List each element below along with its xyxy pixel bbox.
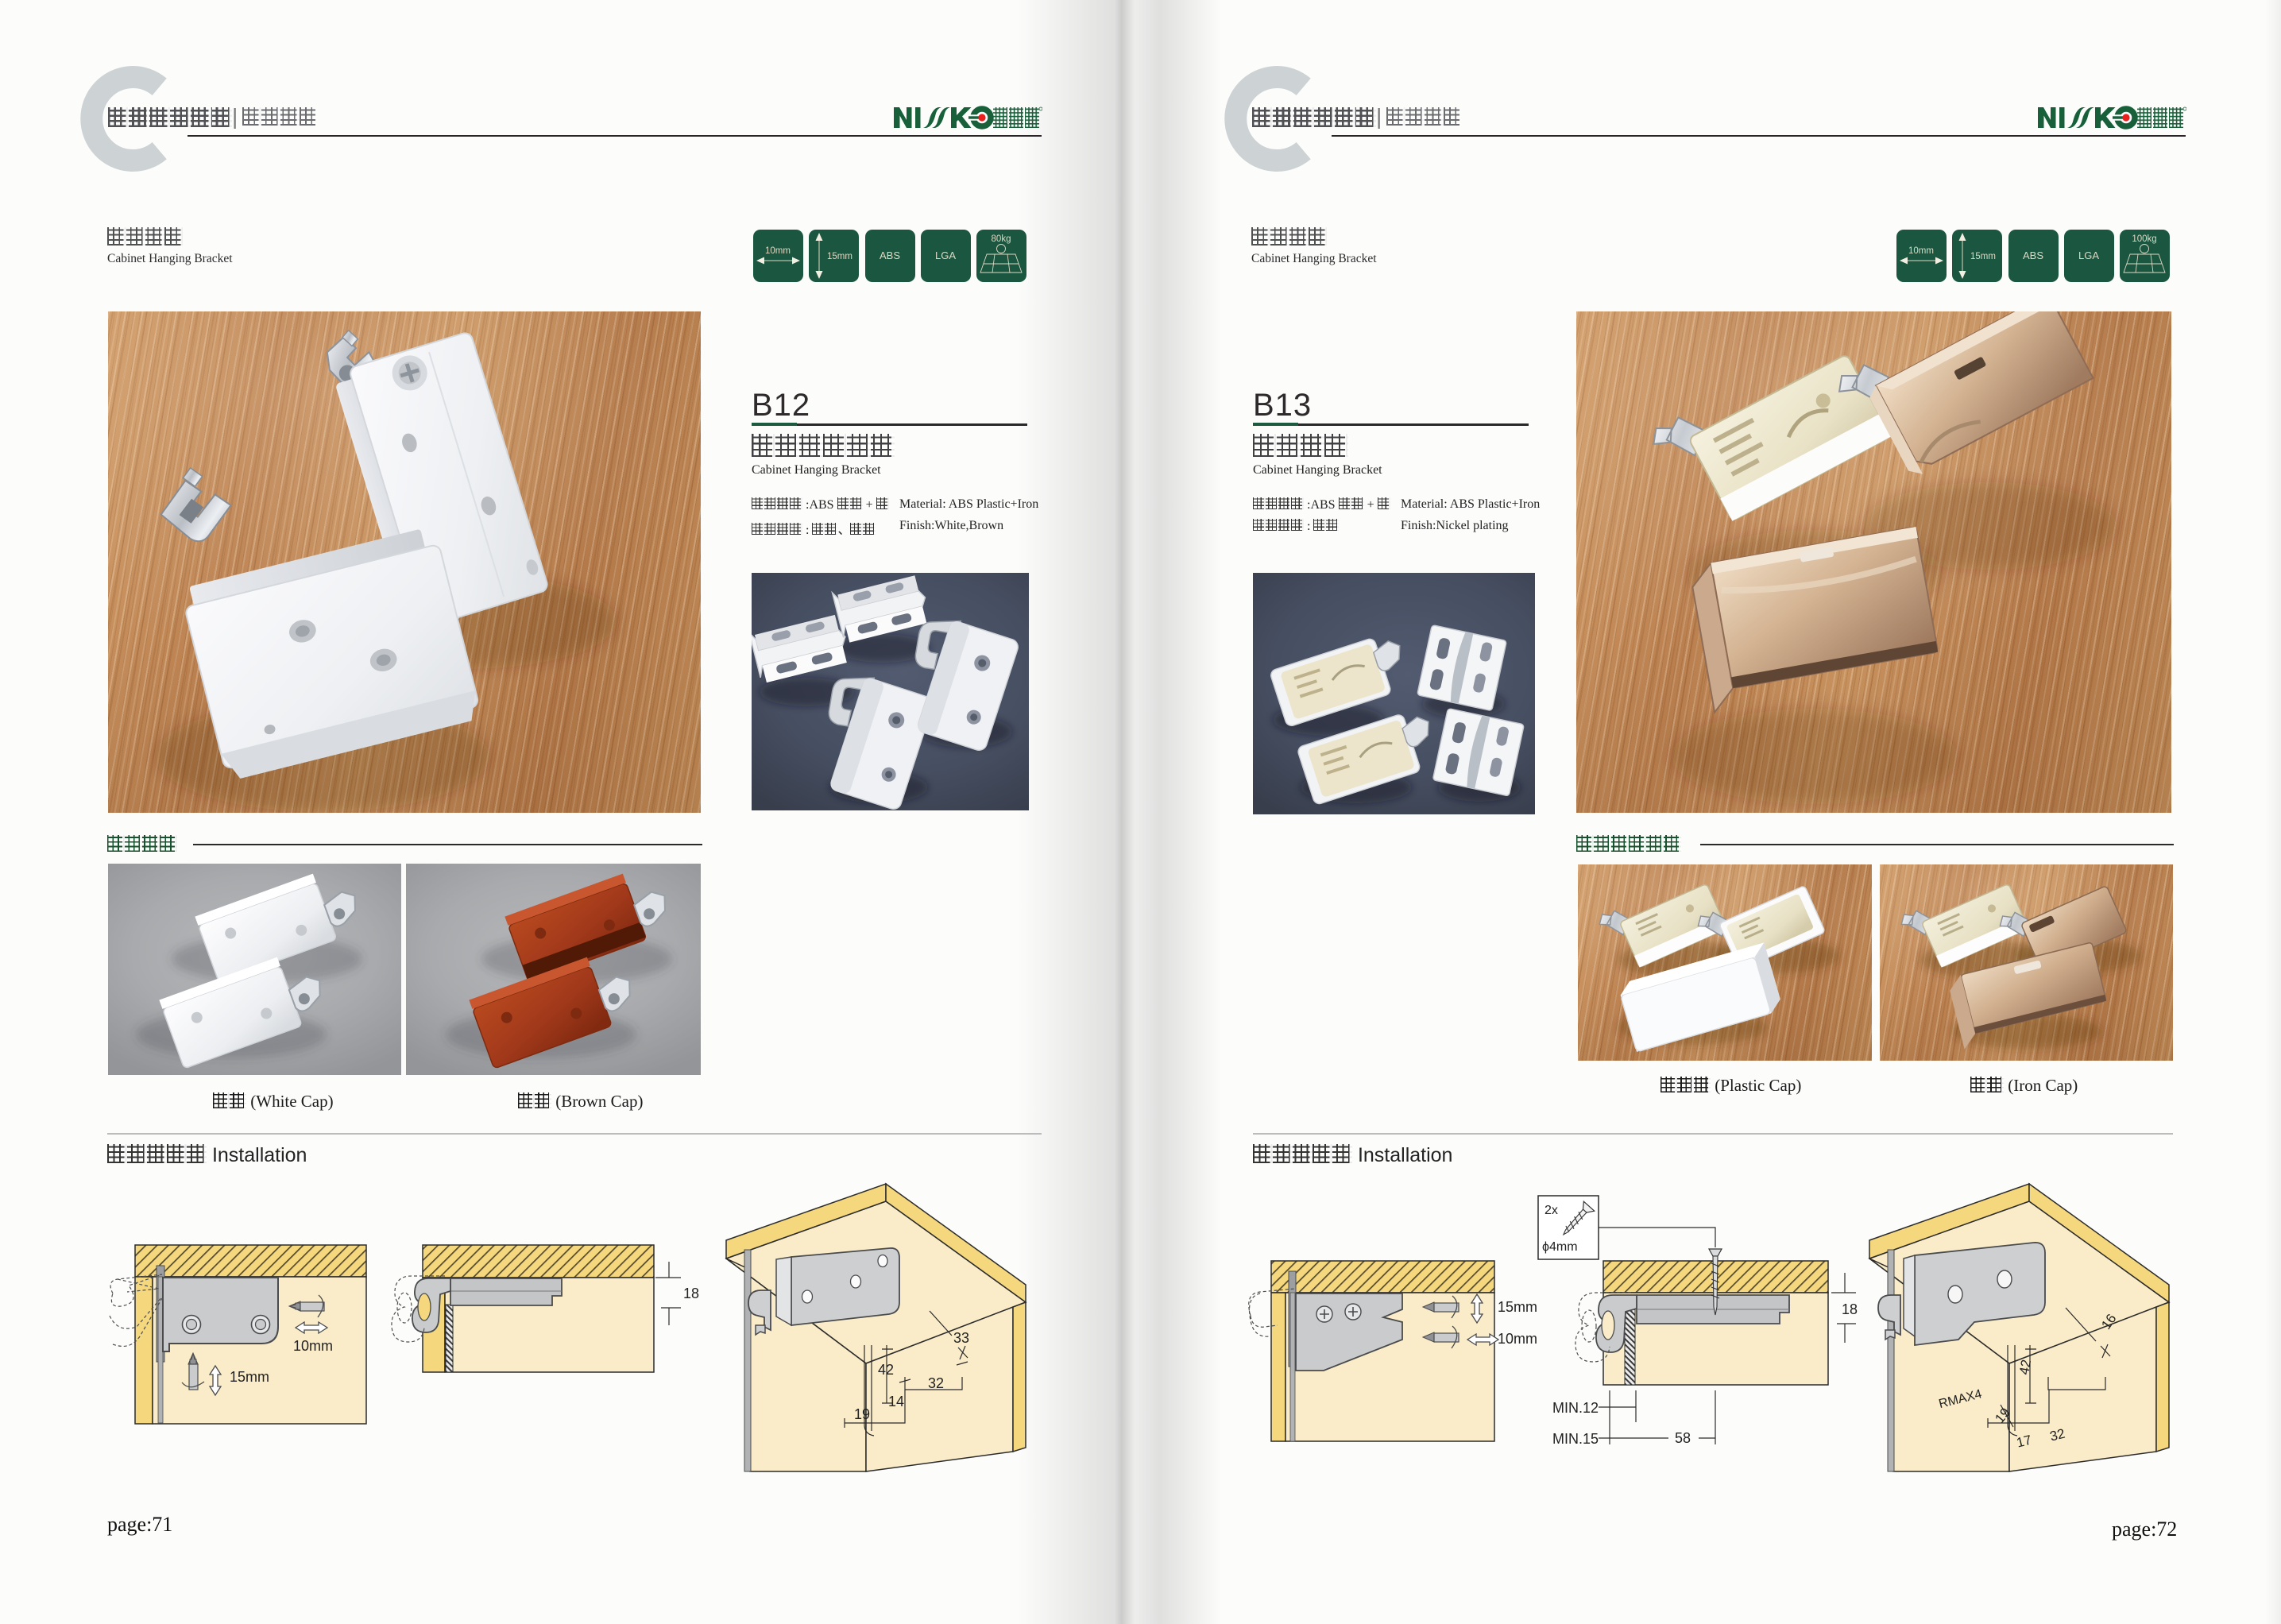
svg-text:15mm: 15mm: [230, 1369, 269, 1385]
svg-text:15mm: 15mm: [827, 252, 852, 261]
svg-text:19: 19: [854, 1406, 870, 1422]
svg-text:32: 32: [928, 1375, 944, 1391]
svg-text:10mm: 10mm: [765, 246, 791, 256]
svg-text:100kg: 100kg: [2132, 234, 2156, 244]
svg-text:58: 58: [1675, 1430, 1691, 1446]
svg-text:10mm: 10mm: [293, 1338, 333, 1354]
svg-text:80kg: 80kg: [992, 234, 1011, 244]
svg-text:10mm: 10mm: [1498, 1331, 1537, 1347]
svg-text:15mm: 15mm: [1498, 1299, 1537, 1315]
svg-text:14: 14: [888, 1394, 904, 1409]
svg-text:42: 42: [2016, 1359, 2034, 1376]
svg-text:33: 33: [953, 1330, 969, 1346]
svg-text:2x: 2x: [1545, 1204, 1558, 1217]
svg-text:10mm: 10mm: [1908, 246, 1934, 256]
svg-text:42: 42: [878, 1362, 894, 1378]
svg-text:ϕ4mm: ϕ4mm: [1542, 1240, 1578, 1254]
svg-text:LGA: LGA: [2078, 249, 2099, 261]
svg-text:LGA: LGA: [935, 249, 956, 261]
svg-text:ABS: ABS: [2023, 249, 2043, 261]
svg-text:ABS: ABS: [880, 249, 900, 261]
svg-text:18: 18: [683, 1286, 699, 1301]
svg-text:MIN.15: MIN.15: [1552, 1431, 1599, 1447]
svg-text:18: 18: [1842, 1301, 1858, 1317]
svg-text:15mm: 15mm: [1970, 252, 1996, 261]
svg-text:MIN.12: MIN.12: [1552, 1400, 1599, 1416]
